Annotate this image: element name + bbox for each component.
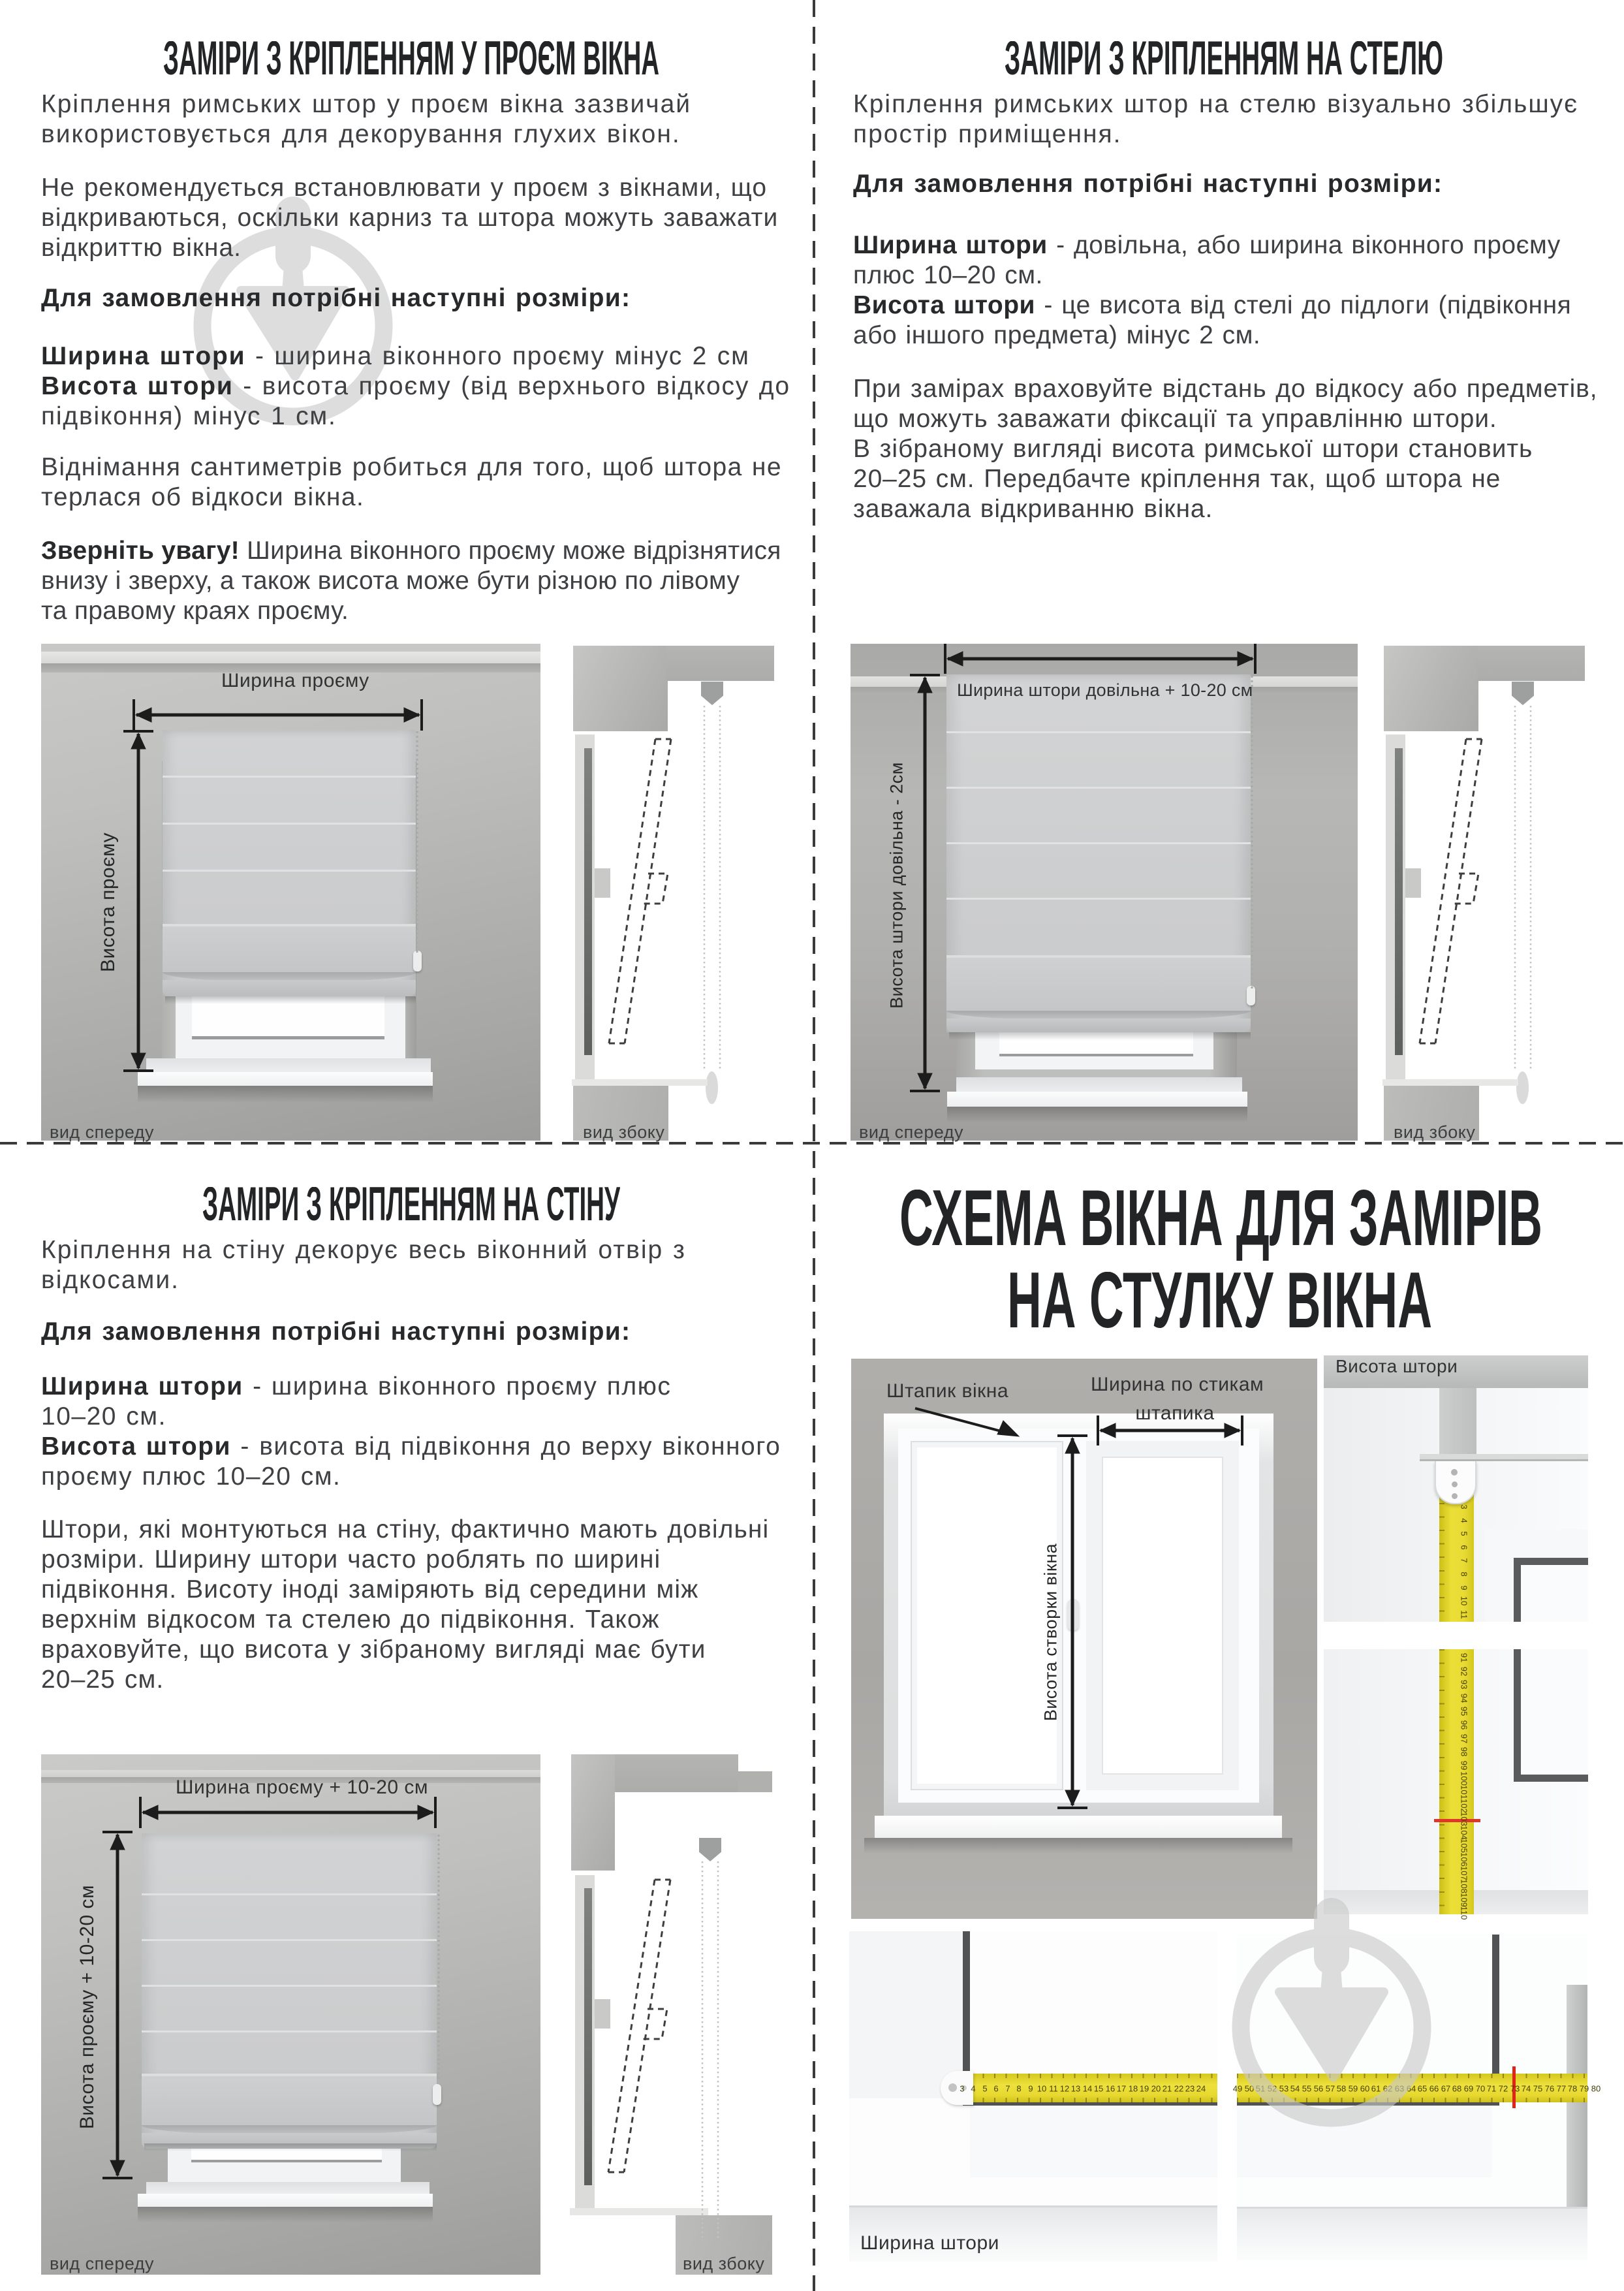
svg-text:НА СТУЛКУ ВІКНА: НА СТУЛКУ ВІКНА bbox=[1007, 1272, 1432, 1344]
svg-text:ЗАМІРИ З КРІПЛЕННЯМ У ПРОЄМ ВІ: ЗАМІРИ З КРІПЛЕННЯМ У ПРОЄМ ВІКНА bbox=[163, 41, 659, 85]
svg-text:СХЕМА ВІКНА ДЛЯ ЗАМІРІВ: СХЕМА ВІКНА ДЛЯ ЗАМІРІВ bbox=[899, 1190, 1542, 1262]
svg-text:ЗАМІРИ З КРІПЛЕННЯМ НА СТІНУ: ЗАМІРИ З КРІПЛЕННЯМ НА СТІНУ bbox=[202, 1187, 620, 1231]
svg-text:ЗАМІРИ З КРІПЛЕННЯМ НА СТЕЛЮ: ЗАМІРИ З КРІПЛЕННЯМ НА СТЕЛЮ bbox=[1005, 41, 1443, 85]
